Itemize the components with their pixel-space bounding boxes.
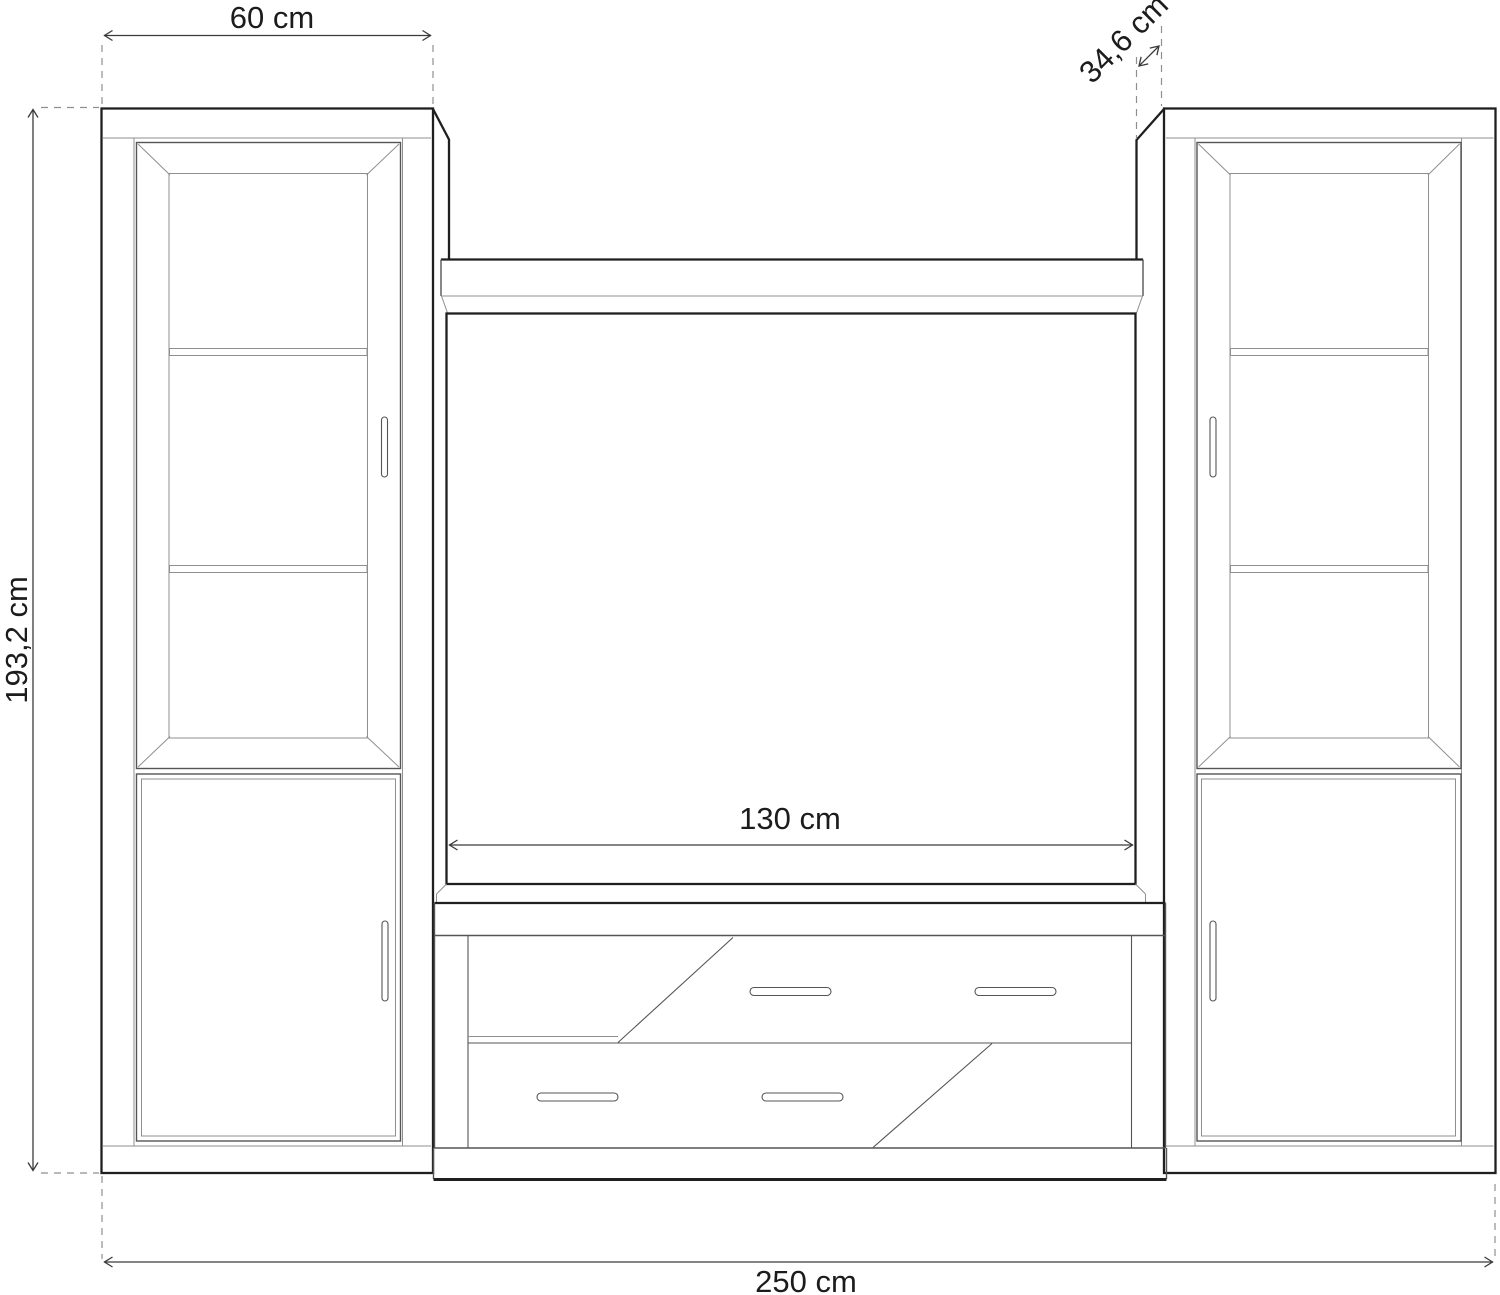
right-display-cabinet <box>1137 109 1496 1174</box>
left-bottom-door <box>137 774 401 1141</box>
left-glass-door-frame <box>137 143 401 769</box>
panel-corner-bevel <box>1136 884 1146 894</box>
technical-drawing-canvas: 60 cm 34,6 cm 193,2 cm 130 cm 250 cm <box>0 0 1500 1295</box>
wood-grain-line <box>873 1044 992 1148</box>
bridge-bevel <box>442 296 448 313</box>
panel-corner-bevel <box>437 884 447 894</box>
tv-bridge-shelf <box>441 260 1143 314</box>
dimension-depth: 34,6 cm <box>1072 0 1175 139</box>
drawer-handle <box>762 1093 843 1101</box>
dimension-label: 34,6 cm <box>1072 0 1175 90</box>
right-cabinet-depth-edge <box>1137 109 1165 259</box>
wood-grain-line <box>618 938 733 1043</box>
dimension-height: 193,2 cm <box>0 108 99 1174</box>
miter-line <box>138 144 170 175</box>
miter-line <box>1428 144 1460 175</box>
miter-line <box>367 144 400 175</box>
dimension-label: 193,2 cm <box>0 576 34 704</box>
door-handle <box>382 921 388 1001</box>
miter-line <box>367 737 400 768</box>
door-handle <box>1210 417 1216 477</box>
door-handle <box>1210 921 1216 1001</box>
miter-line <box>1428 737 1460 768</box>
right-glass-door-frame <box>1197 143 1461 769</box>
dimension-label: 60 cm <box>230 0 314 35</box>
glass-shelf <box>170 349 368 356</box>
left-cabinet-outline <box>102 109 434 1174</box>
drawer-handle <box>975 988 1056 996</box>
tv-stand-lowboard <box>434 903 1167 1180</box>
left-cabinet-depth-edge <box>433 109 449 259</box>
dimension-arrow <box>1140 47 1158 65</box>
glass-shelf <box>1231 349 1429 356</box>
right-bottom-door <box>1197 774 1461 1141</box>
door-handle <box>382 417 388 477</box>
right-glass-door <box>1197 143 1461 769</box>
miter-line <box>1199 737 1231 768</box>
drawer-handle <box>537 1093 618 1101</box>
miter-line <box>138 737 170 768</box>
bridge-bevel <box>1137 296 1143 313</box>
left-display-cabinet <box>102 109 450 1174</box>
drawer-handle <box>750 988 831 996</box>
left-bottom-door-inner-edge <box>142 779 396 1136</box>
miter-line <box>1199 144 1231 175</box>
furniture-dimension-diagram: 60 cm 34,6 cm 193,2 cm 130 cm 250 cm <box>0 0 1500 1295</box>
dimension-label: 130 cm <box>739 801 841 836</box>
dimension-label: 250 cm <box>755 1264 857 1295</box>
right-glass-pane <box>1230 174 1429 739</box>
left-bottom-door-panel <box>137 774 401 1141</box>
glass-shelf <box>170 566 368 573</box>
dimension-tv-panel-width: 130 cm <box>449 801 1133 850</box>
right-bottom-door-inner-edge <box>1202 779 1456 1136</box>
dimension-total-width: 250 cm <box>102 1176 1495 1295</box>
tv-back-panel-outline <box>447 314 1136 885</box>
dimension-left-cabinet-width: 60 cm <box>102 0 433 104</box>
left-glass-pane <box>169 174 368 739</box>
right-bottom-door-panel <box>1197 774 1461 1141</box>
glass-shelf <box>1231 566 1429 573</box>
left-glass-door <box>137 143 401 769</box>
right-cabinet-outline <box>1164 109 1496 1174</box>
